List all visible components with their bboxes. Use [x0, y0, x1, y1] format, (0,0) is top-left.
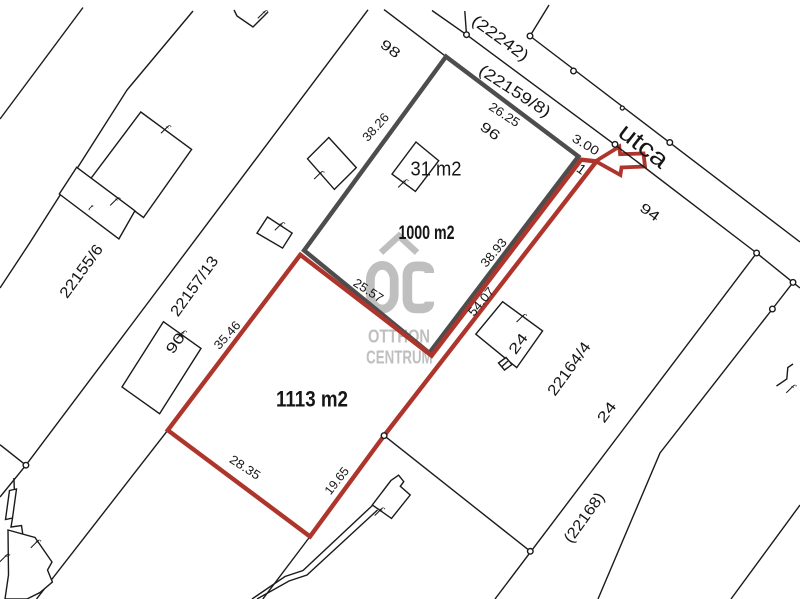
- svg-text:1113 m2: 1113 m2: [276, 387, 348, 412]
- svg-text:31 m2: 31 m2: [411, 158, 462, 180]
- svg-text:1000 m2: 1000 m2: [399, 223, 455, 244]
